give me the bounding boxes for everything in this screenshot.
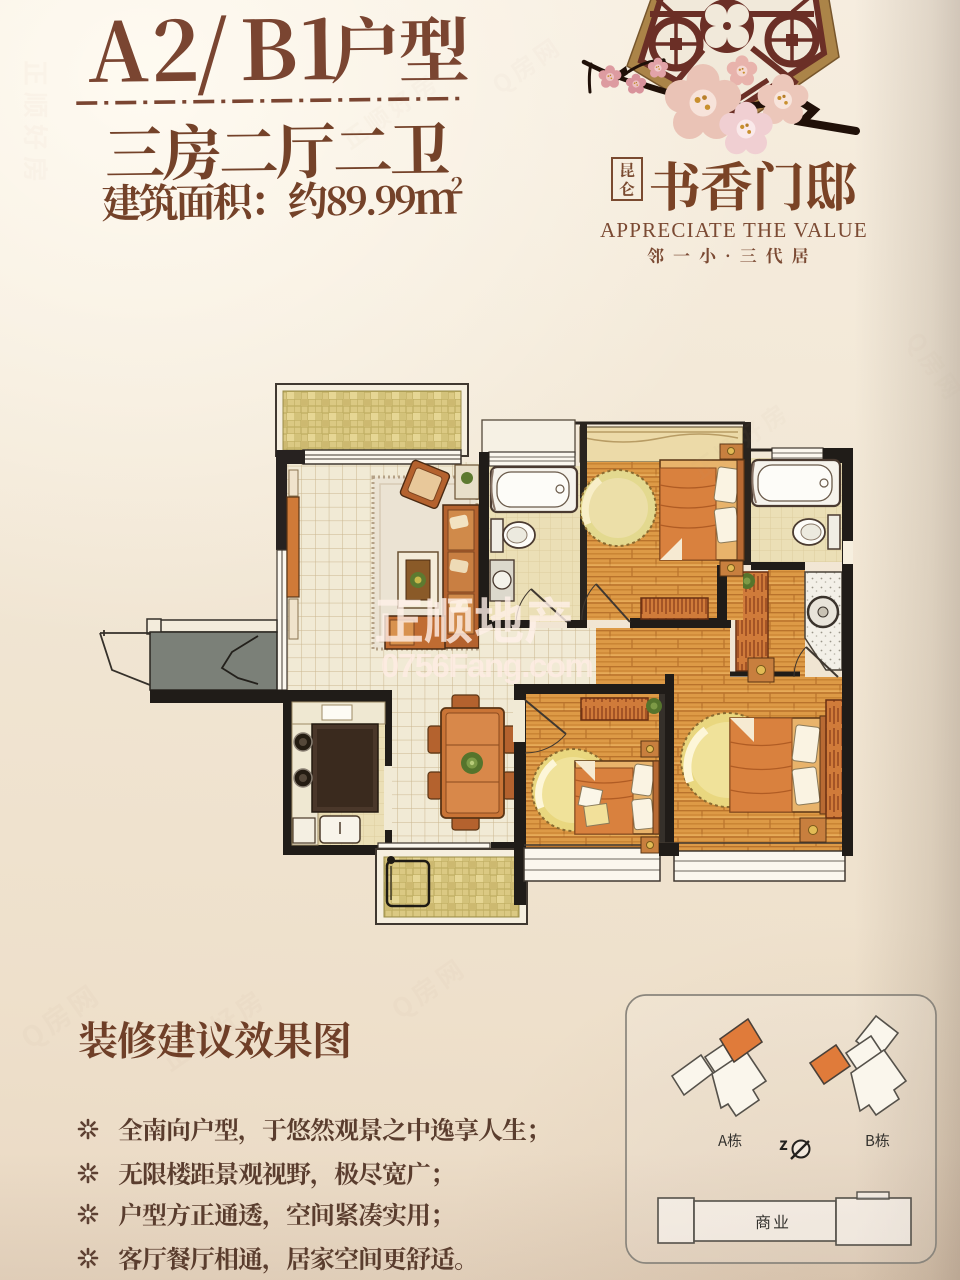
svg-text:0756Fang.com: 0756Fang.com: [381, 647, 592, 684]
svg-text:APPRECIATE THE VALUE: APPRECIATE THE VALUE: [600, 218, 868, 242]
